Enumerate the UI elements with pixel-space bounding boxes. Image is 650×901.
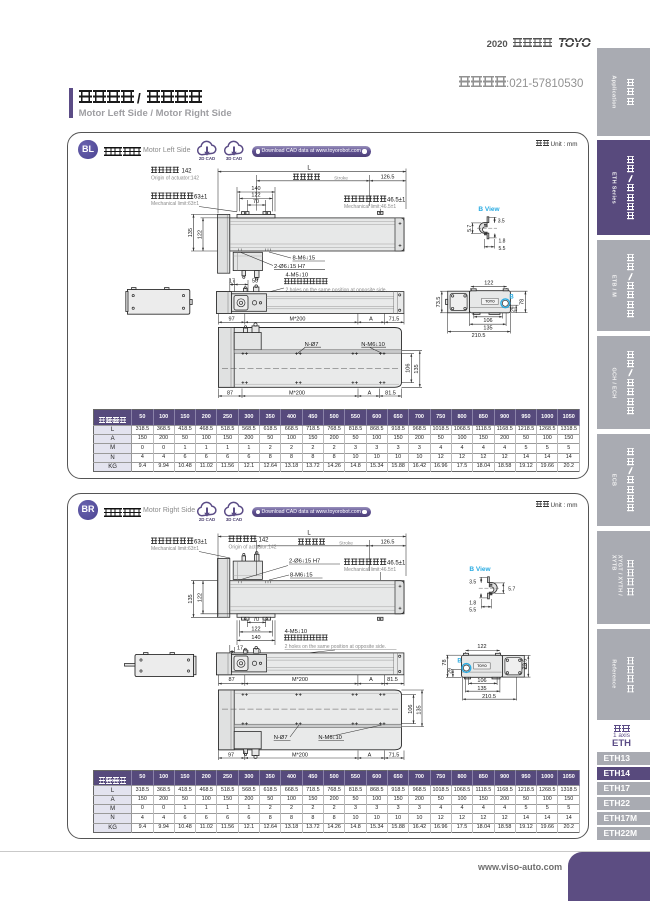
svg-text:3D CAD: 3D CAD <box>226 156 242 161</box>
svg-text:2D CAD: 2D CAD <box>198 156 214 161</box>
svg-text:3D CAD: 3D CAD <box>226 517 242 522</box>
svg-text:2D CAD: 2D CAD <box>198 517 214 522</box>
